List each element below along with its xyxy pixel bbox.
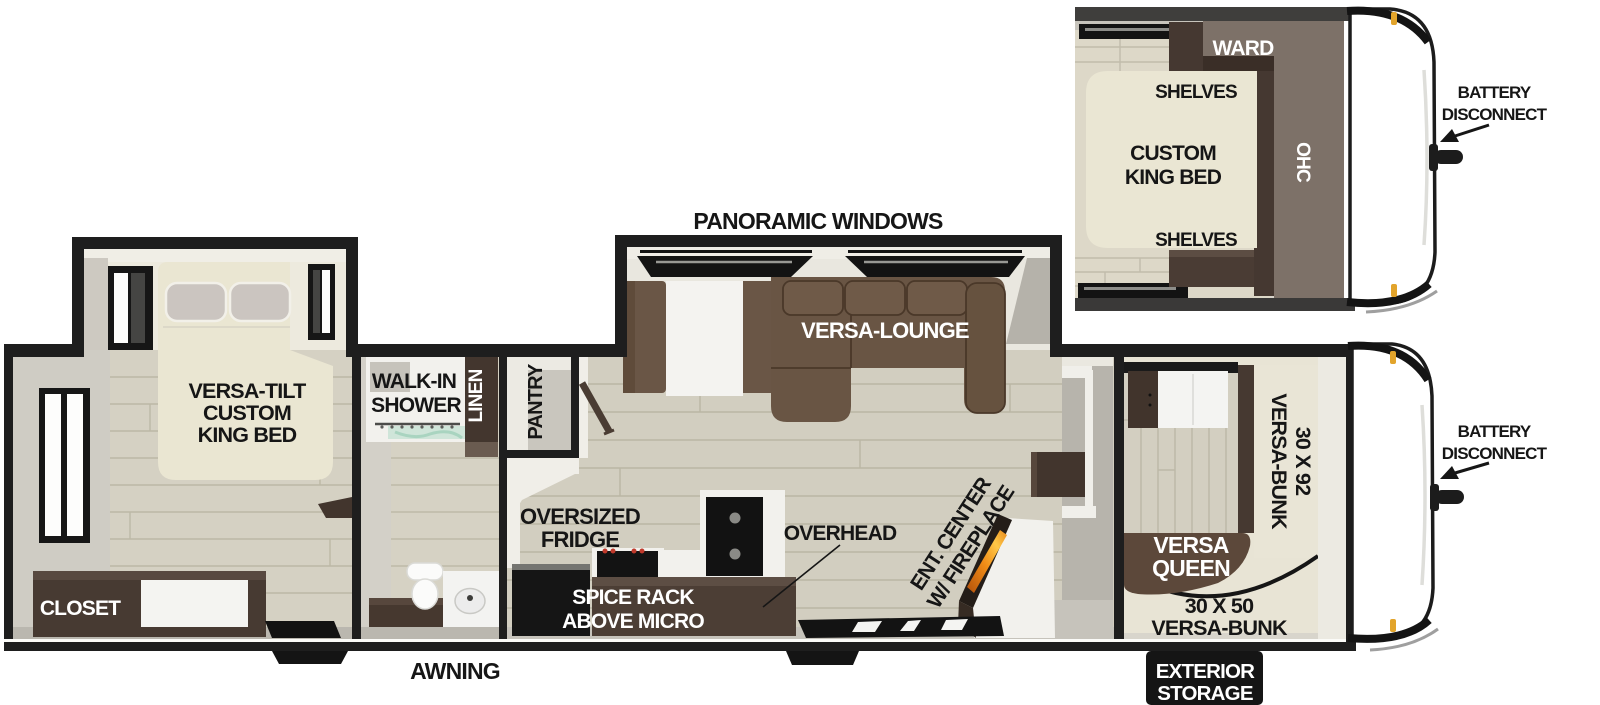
svg-text:EXTERIOR: EXTERIOR <box>1156 660 1255 683</box>
svg-text:OVERSIZED: OVERSIZED <box>520 504 640 529</box>
svg-text:DISCONNECT: DISCONNECT <box>1442 444 1548 463</box>
svg-text:ABOVE MICRO: ABOVE MICRO <box>562 610 704 633</box>
svg-text:FRIDGE: FRIDGE <box>541 527 619 552</box>
svg-text:PANORAMIC WINDOWS: PANORAMIC WINDOWS <box>693 208 943 234</box>
svg-text:VERSA-TILT: VERSA-TILT <box>188 379 306 403</box>
svg-text:STORAGE: STORAGE <box>1157 682 1253 705</box>
svg-text:BATTERY: BATTERY <box>1458 422 1532 441</box>
svg-text:PANTRY: PANTRY <box>525 363 547 440</box>
svg-text:SHELVES: SHELVES <box>1155 230 1237 251</box>
svg-text:KING BED: KING BED <box>198 423 297 447</box>
svg-text:30 X 92: 30 X 92 <box>1291 427 1315 496</box>
svg-text:WARD: WARD <box>1213 37 1275 60</box>
svg-text:VERSA-LOUNGE: VERSA-LOUNGE <box>801 318 969 343</box>
svg-text:CUSTOM: CUSTOM <box>1130 142 1216 165</box>
svg-text:SHOWER: SHOWER <box>371 394 461 417</box>
svg-text:KING BED: KING BED <box>1125 166 1222 189</box>
svg-text:DISCONNECT: DISCONNECT <box>1442 105 1548 124</box>
svg-text:VERSA-BUNK: VERSA-BUNK <box>1267 393 1291 530</box>
svg-text:CUSTOM: CUSTOM <box>203 401 291 425</box>
svg-text:QUEEN: QUEEN <box>1152 555 1230 581</box>
svg-text:AWNING: AWNING <box>410 658 500 684</box>
svg-text:OHC: OHC <box>1292 142 1313 183</box>
svg-text:BATTERY: BATTERY <box>1458 83 1532 102</box>
svg-text:SHELVES: SHELVES <box>1155 82 1237 103</box>
svg-text:WALK-IN: WALK-IN <box>372 370 456 393</box>
svg-text:30 X 50: 30 X 50 <box>1185 594 1254 618</box>
svg-text:CLOSET: CLOSET <box>40 597 121 620</box>
svg-text:LINEN: LINEN <box>466 369 487 422</box>
svg-text:SPICE RACK: SPICE RACK <box>572 586 694 609</box>
svg-text:VERSA-BUNK: VERSA-BUNK <box>1151 616 1288 640</box>
svg-text:OVERHEAD: OVERHEAD <box>784 522 897 545</box>
